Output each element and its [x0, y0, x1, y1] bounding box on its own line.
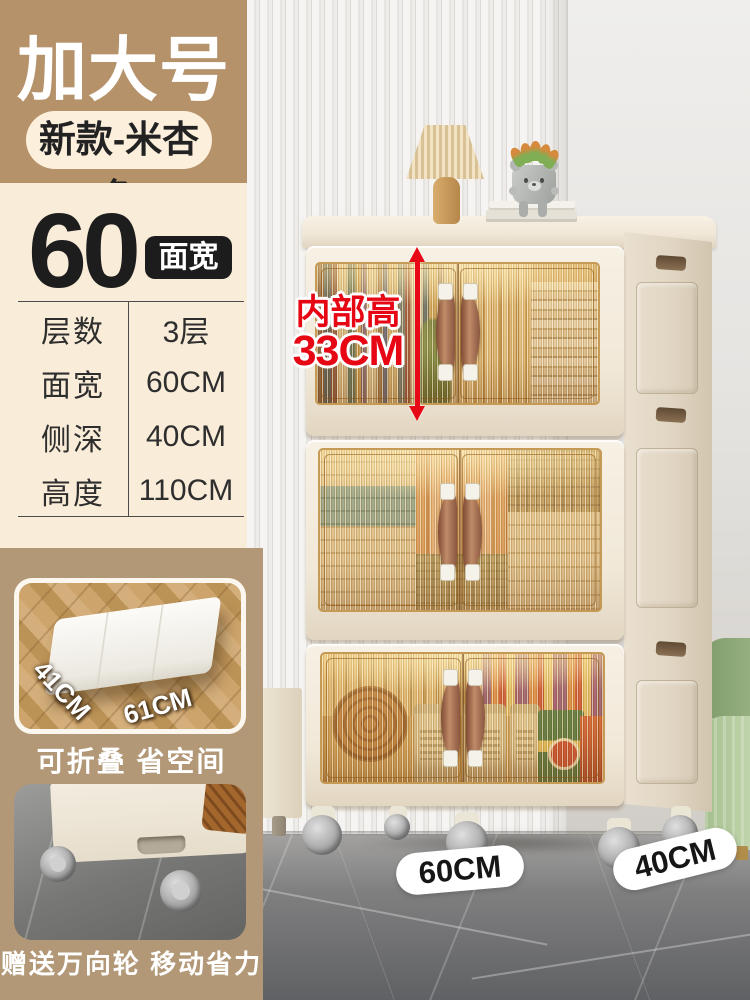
side-inset-panel [636, 448, 698, 608]
handle-clip [443, 669, 458, 686]
tier-3-box [306, 644, 624, 806]
folded-product-photo: 41CM 61CM [14, 578, 246, 734]
spec-label: 侧深 [18, 415, 128, 459]
handle-clip [465, 564, 480, 581]
spec-panel: 60 面宽 层数 3层 面宽 60CM 侧深 40CM 高度 110CM [0, 183, 247, 548]
product-size-title: 加大号 [0, 14, 247, 115]
side-inset-panel [636, 680, 698, 784]
baseboard-panel [262, 688, 302, 818]
caster-wheel [160, 870, 202, 912]
side-handle-notch [656, 641, 687, 657]
stool-leg [736, 846, 748, 860]
book-stack-bottom [486, 210, 577, 222]
inner-height-label: 内部高 33CM [278, 295, 418, 373]
spec-label: 高度 [18, 469, 128, 513]
spec-value: 110CM [128, 474, 244, 508]
wheels-photo [14, 784, 246, 940]
handle-clip [440, 564, 455, 581]
tier-2-handle[interactable] [435, 484, 485, 580]
table-row: 侧深 40CM [18, 410, 244, 464]
handle-clip [468, 669, 483, 686]
handle-clip [463, 364, 478, 381]
spec-value: 40CM [128, 420, 244, 454]
product-infographic: 内部高 33CM 60CM 40CM 加大号 新款-米杏色 60 面宽 层数 3… [0, 0, 750, 1000]
handle-clip [443, 750, 458, 767]
wheels-caption: 赠送万向轮 移动省力 [0, 944, 263, 981]
handle-clip [438, 283, 453, 300]
side-handle-notch [656, 255, 687, 271]
table-row: 高度 110CM [18, 464, 244, 518]
caster-wheel [302, 806, 344, 858]
fold-caption: 可折叠 省空间 [0, 740, 263, 780]
side-handle-notch [656, 407, 687, 423]
handle-clip [438, 364, 453, 381]
handle-clip [468, 750, 483, 767]
tier-1-handle[interactable] [433, 284, 483, 380]
table-row: 层数 3层 [18, 302, 244, 356]
spec-label: 面宽 [18, 361, 128, 405]
lamp-base [433, 177, 460, 224]
handle-strap [466, 679, 485, 757]
inner-height-value: 33CM [278, 330, 418, 373]
side-inset-panel [636, 282, 698, 394]
spec-value: 3层 [128, 307, 244, 351]
handle-clip [465, 483, 480, 500]
spec-label: 层数 [18, 307, 128, 351]
handle-strap [438, 493, 457, 571]
folded-width-label: 61CM [120, 682, 195, 731]
spec-table: 层数 3层 面宽 60CM 侧深 40CM 高度 110CM [18, 301, 244, 517]
caster-wheel [40, 846, 76, 882]
inner-height-text: 内部高 [278, 295, 418, 330]
handle-strap [463, 493, 482, 571]
spec-value: 60CM [128, 366, 244, 400]
bear-planter [512, 165, 556, 204]
handle-strap [436, 293, 455, 371]
handle-strap [461, 293, 480, 371]
handle-clip [463, 283, 478, 300]
table-row: 面宽 60CM [18, 356, 244, 410]
tier-2-box [306, 440, 624, 640]
header-banner: 加大号 新款-米杏色 [0, 0, 247, 183]
succulent-plant [510, 141, 556, 169]
width-number: 60 [28, 191, 136, 312]
tier-3-window [320, 652, 605, 784]
feature-panel: 41CM 61CM 可折叠 省空间 赠送万向轮 移动省力 [0, 548, 263, 1000]
width-badge: 面宽 [145, 236, 232, 279]
tier-2-window [318, 448, 602, 612]
rattan-basket [201, 784, 246, 834]
caster-wheel [384, 806, 412, 842]
handle-clip [440, 483, 455, 500]
handle-strap [441, 679, 460, 757]
variant-pill: 新款-米杏色 [26, 111, 212, 169]
tier-3-handle[interactable] [438, 670, 488, 766]
cabinet-side-face [624, 230, 712, 814]
